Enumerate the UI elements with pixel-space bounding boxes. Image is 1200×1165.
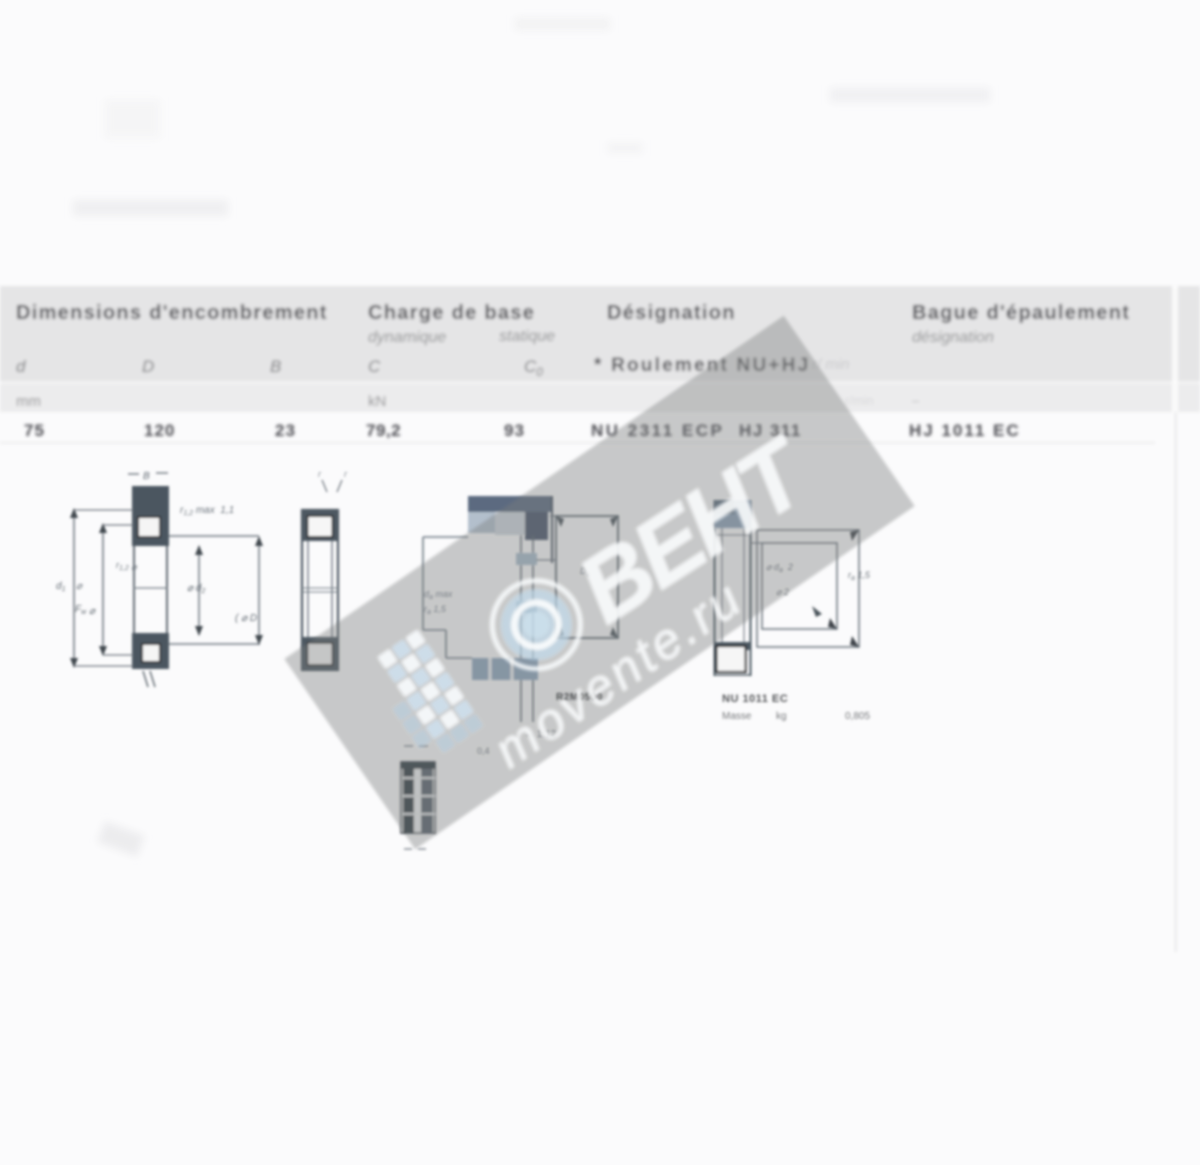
svg-text:mm: mm — [16, 393, 41, 410]
svg-text:C: C — [368, 357, 381, 376]
svg-text:0,805: 0,805 — [845, 711, 870, 722]
svg-text:75: 75 — [24, 421, 45, 440]
svg-text:désignation: désignation — [912, 329, 994, 346]
svg-text:statique: statique — [499, 328, 555, 345]
svg-text:kN: kN — [368, 393, 386, 410]
svg-text:Masse: Masse — [722, 711, 752, 722]
svg-text:kg: kg — [776, 711, 787, 722]
svg-text:D: D — [142, 357, 154, 376]
svg-text:Charge de base: Charge de base — [368, 302, 535, 324]
svg-text:23: 23 — [275, 421, 296, 440]
svg-text:( ⌀ D: ( ⌀ D — [235, 613, 257, 624]
svg-text:dynamique: dynamique — [368, 329, 446, 346]
svg-text:120: 120 — [144, 421, 175, 440]
svg-text:Dimensions d'encombrement: Dimensions d'encombrement — [16, 302, 328, 324]
svg-text:B: B — [270, 357, 281, 376]
svg-text:Désignation: Désignation — [607, 302, 736, 324]
svg-text:–: – — [912, 393, 920, 408]
svg-text:⌀: ⌀ — [76, 581, 83, 592]
svg-text:93: 93 — [504, 421, 525, 440]
svg-text:NU 1011 EC: NU 1011 EC — [722, 693, 788, 705]
svg-text:B: B — [143, 471, 150, 482]
svg-text:Bague d'épaulement: Bague d'épaulement — [912, 302, 1130, 324]
svg-text:79,2: 79,2 — [366, 421, 401, 440]
svg-text:d: d — [16, 357, 26, 376]
svg-text:HJ 1011 EC: HJ 1011 EC — [909, 421, 1021, 440]
svg-text:r/min: r/min — [845, 393, 874, 408]
